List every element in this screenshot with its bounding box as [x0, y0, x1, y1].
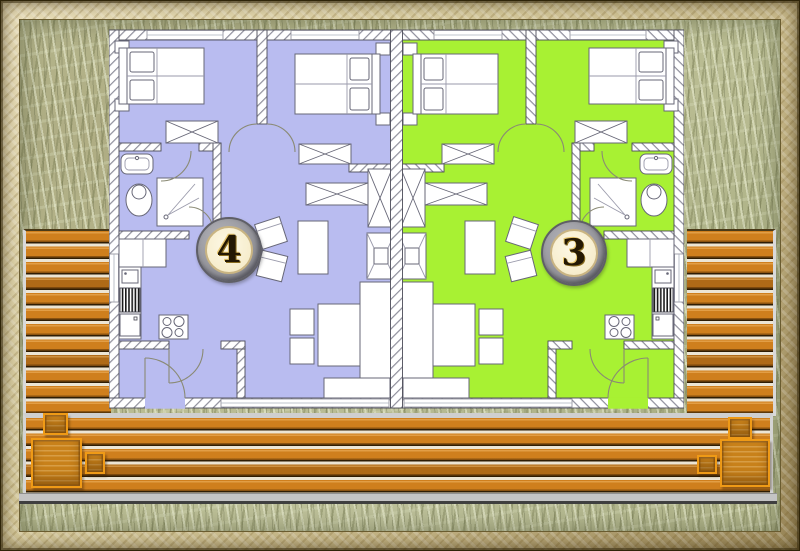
deck-bottom-terrace [23, 413, 773, 494]
framed-site-plan: 4 3 [0, 0, 800, 551]
deck-table [720, 439, 770, 487]
unit-3-badge: 3 [541, 220, 607, 286]
deck-table [31, 438, 82, 488]
deck-chair [697, 455, 717, 474]
deck-left-strip [23, 229, 111, 416]
apartment-4-plan [109, 30, 397, 409]
deck-front-edge [19, 493, 777, 504]
unit-4-number: 4 [205, 226, 253, 274]
unit-3-number: 3 [550, 229, 598, 277]
deck-chair [85, 452, 105, 474]
deck-chair [43, 413, 68, 435]
deck-right-strip [687, 229, 776, 416]
apartment-3-plan [397, 30, 685, 409]
unit-4-badge: 4 [196, 217, 262, 283]
central-party-wall [391, 30, 403, 408]
floor-plan [109, 26, 684, 411]
deck-chair [728, 417, 752, 439]
